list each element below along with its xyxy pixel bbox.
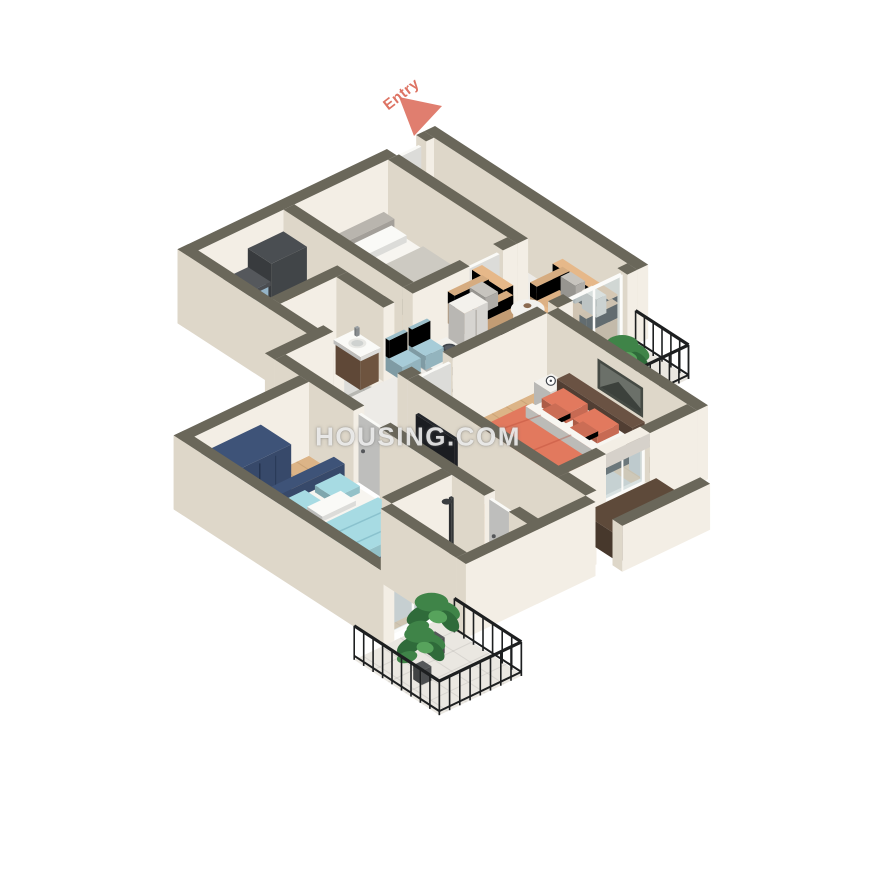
floorplan-render: Entry HOUSING.COM xyxy=(0,0,870,870)
watermark: HOUSING.COM xyxy=(315,422,521,453)
